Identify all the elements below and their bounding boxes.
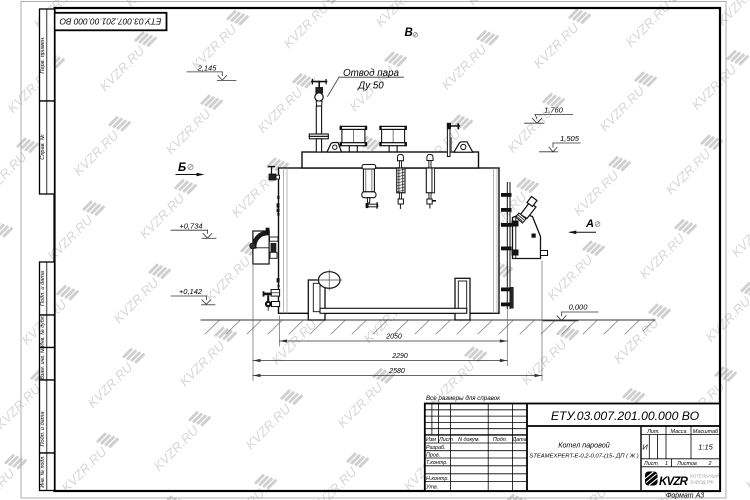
svg-text:Формат А3: Формат А3 [666, 493, 704, 500]
svg-text:ЗАВОД.РФ: ЗАВОД.РФ [690, 480, 714, 485]
svg-text:2: 2 [708, 461, 712, 467]
svg-text:N докум.: N докум. [458, 437, 480, 443]
svg-text:Справ. №: Справ. № [40, 134, 46, 159]
svg-text:Котел паровой: Котел паровой [558, 441, 610, 450]
svg-text:Б: Б [178, 162, 186, 174]
svg-text:ЕТУ.03.007.201.00.000 ВО: ЕТУ.03.007.201.00.000 ВО [59, 16, 161, 26]
svg-text:Все размеры для справок: Все размеры для справок [426, 395, 501, 402]
svg-text:+0,734: +0,734 [179, 222, 202, 231]
svg-text:Взам. инв. №: Взам. инв. № [40, 347, 46, 379]
svg-text:2290: 2290 [391, 353, 408, 360]
svg-text:Подп. и дата: Подп. и дата [40, 411, 46, 446]
svg-text:В: В [405, 27, 413, 39]
svg-text:Изм: Изм [426, 437, 436, 443]
svg-text:Масса: Масса [671, 429, 687, 435]
svg-text:И: И [642, 443, 648, 452]
svg-text:Ду 50: Ду 50 [357, 81, 384, 92]
svg-text:Подп.: Подп. [493, 437, 507, 443]
svg-text:Листов: Листов [676, 461, 697, 467]
svg-text:Инв. № дубл.: Инв. № дубл. [40, 315, 46, 347]
svg-text:2580: 2580 [388, 368, 405, 375]
svg-text:1,505: 1,505 [560, 134, 580, 143]
svg-text:Перв. примен.: Перв. примен. [40, 36, 46, 73]
svg-text:0,000: 0,000 [569, 303, 589, 312]
svg-text:Дата: Дата [511, 437, 526, 443]
svg-text:Н.контр.: Н.контр. [426, 476, 449, 482]
svg-text:Утв.: Утв. [425, 484, 438, 490]
svg-text:2050: 2050 [385, 334, 402, 341]
svg-text:Лит.: Лит. [646, 429, 660, 435]
svg-text:1:15: 1:15 [698, 443, 713, 452]
svg-text:ЕТУ.03.007.201.00.000 ВО: ЕТУ.03.007.201.00.000 ВО [551, 409, 700, 423]
svg-text:1: 1 [665, 461, 668, 467]
svg-text:STEAMEXPERT-Е-0,2-0,07-(15- ДП: STEAMEXPERT-Е-0,2-0,07-(15- ДП ( Ж ) [529, 454, 638, 460]
svg-text:Масштаб: Масштаб [693, 429, 719, 435]
svg-text:Подп. и дата: Подп. и дата [40, 271, 46, 306]
svg-text:Лист: Лист [643, 461, 658, 467]
svg-text:1,760: 1,760 [544, 106, 564, 115]
svg-text:КОТЕЛЬНЫЙ: КОТЕЛЬНЫЙ [690, 472, 720, 479]
svg-text:Т.контр.: Т.контр. [426, 460, 448, 466]
svg-text:А: А [585, 218, 594, 230]
svg-text:Разраб.: Разраб. [426, 445, 446, 451]
svg-text:Пров.: Пров. [426, 452, 440, 458]
svg-text:2,145: 2,145 [197, 64, 218, 73]
svg-text:Лист: Лист [438, 437, 453, 443]
svg-text:KVZR: KVZR [659, 476, 689, 488]
svg-text:Инв. № подл.: Инв. № подл. [40, 455, 46, 487]
svg-text:+0,142: +0,142 [179, 287, 203, 296]
